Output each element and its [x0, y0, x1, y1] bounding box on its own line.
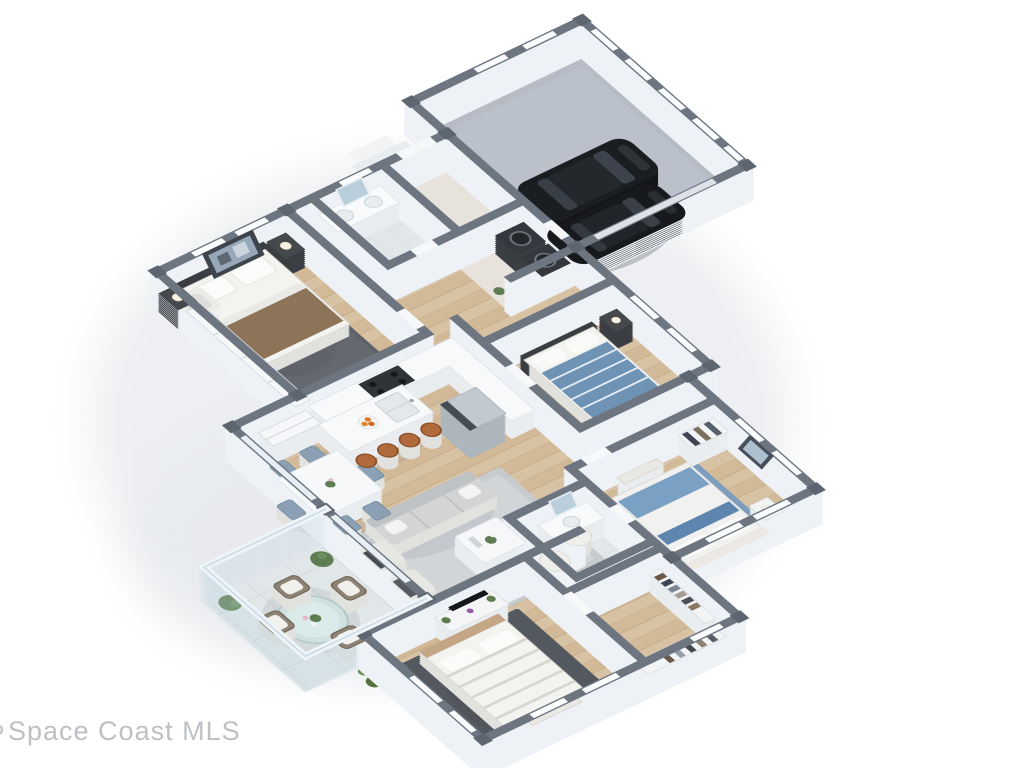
watermark: Space Coast MLS: [0, 716, 241, 746]
floor-plan-image: Space Coast MLS: [0, 0, 1024, 768]
watermark-text: Space Coast MLS: [8, 716, 241, 746]
floor-plan-render: Space Coast MLS: [0, 0, 1024, 768]
watermark-clipped-glyph: [0, 726, 2, 734]
